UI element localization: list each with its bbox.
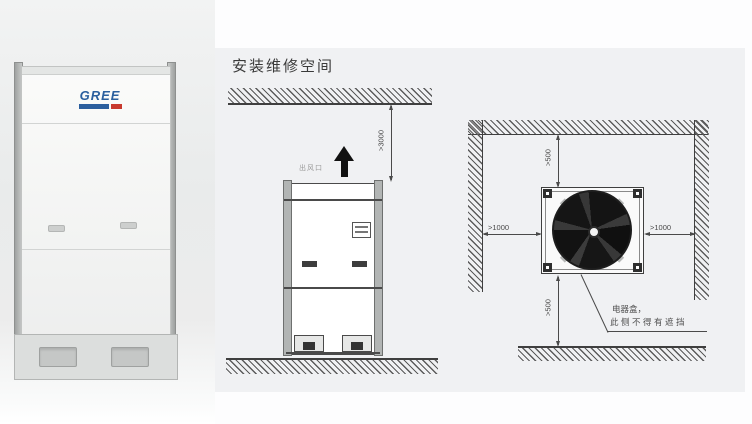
dimension-arrow-right [690,232,696,236]
top-clearance-label: >3000 [377,121,386,161]
ground-hatch [226,358,438,374]
right-clearance-dimension-line [646,234,694,235]
panel-title: 安装维修空间 [232,55,334,76]
cabinet-front-panel: GREE [21,66,171,364]
wall-hatch-left [468,120,483,292]
ceiling-hatch [228,88,432,105]
corner-bracket [543,263,552,272]
catalog-page: GREE 安装维修空间 >3000 出风口 [0,0,752,424]
front-clearance-dimension-line [558,277,559,345]
air-outlet-arrow-icon [334,146,354,161]
note-text-line2: 此侧不得有遮挡 [610,316,687,328]
unit-foot [342,335,372,352]
unit-corner-post-left [283,180,292,356]
unit-bottom-rail [286,352,380,355]
dimension-arrow-down [389,176,393,182]
cabinet-top-cap [22,67,170,75]
cabinet-handle [120,222,137,229]
dimension-arrow-left [482,232,488,236]
dimension-arrow-up [389,104,393,110]
dimension-arrow-up [556,134,560,140]
forklift-slot [111,347,149,367]
dimension-arrow-left [644,232,650,236]
unit-front-outline [283,183,383,355]
unit-handle [352,260,367,267]
top-clearance-dimension-line [391,106,392,180]
brand-logo: GREE [60,89,140,115]
air-outlet-label: 出风口 [299,163,323,173]
brand-logo-bars [60,104,140,109]
front-clearance-label: >500 [544,288,553,328]
note-text-line1: 电器盒， [612,303,646,315]
left-clearance-dimension-line [484,234,540,235]
unit-panel-divider [284,287,382,289]
dimension-arrow-up [556,275,560,281]
cabinet-seam [22,123,170,124]
ground-hatch-plan [518,346,706,361]
wall-hatch-right [694,120,709,300]
dimension-arrow-down [556,182,560,188]
logo-bar-blue [79,104,109,109]
unit-corner-post-right [374,180,383,356]
left-clearance-label: >1000 [488,223,509,232]
brand-wordmark: GREE [60,89,140,102]
corner-bracket [633,263,642,272]
corner-bracket [633,189,642,198]
fan-icon [552,190,632,270]
plan-unit-outline [541,187,644,274]
corner-bracket [543,189,552,198]
dimension-arrow-down [556,341,560,347]
unit-logo-patch [352,222,371,238]
back-clearance-label: >500 [544,138,553,178]
cabinet-base [14,334,178,380]
logo-bar-red [111,104,122,109]
unit-top-rail [284,199,382,201]
air-outlet-arrow-stem [341,160,348,177]
fan-hub [588,226,600,238]
back-clearance-dimension-line [558,136,559,186]
unit-foot [294,335,324,352]
dimension-arrow-right [536,232,542,236]
outdoor-unit-photo: GREE [14,62,176,380]
unit-handle [302,260,317,267]
wall-hatch-back [468,120,708,135]
note-underline [607,331,707,332]
cabinet-seam [22,249,170,250]
forklift-slot [39,347,77,367]
cabinet-handle [48,225,65,232]
right-clearance-label: >1000 [650,223,671,232]
